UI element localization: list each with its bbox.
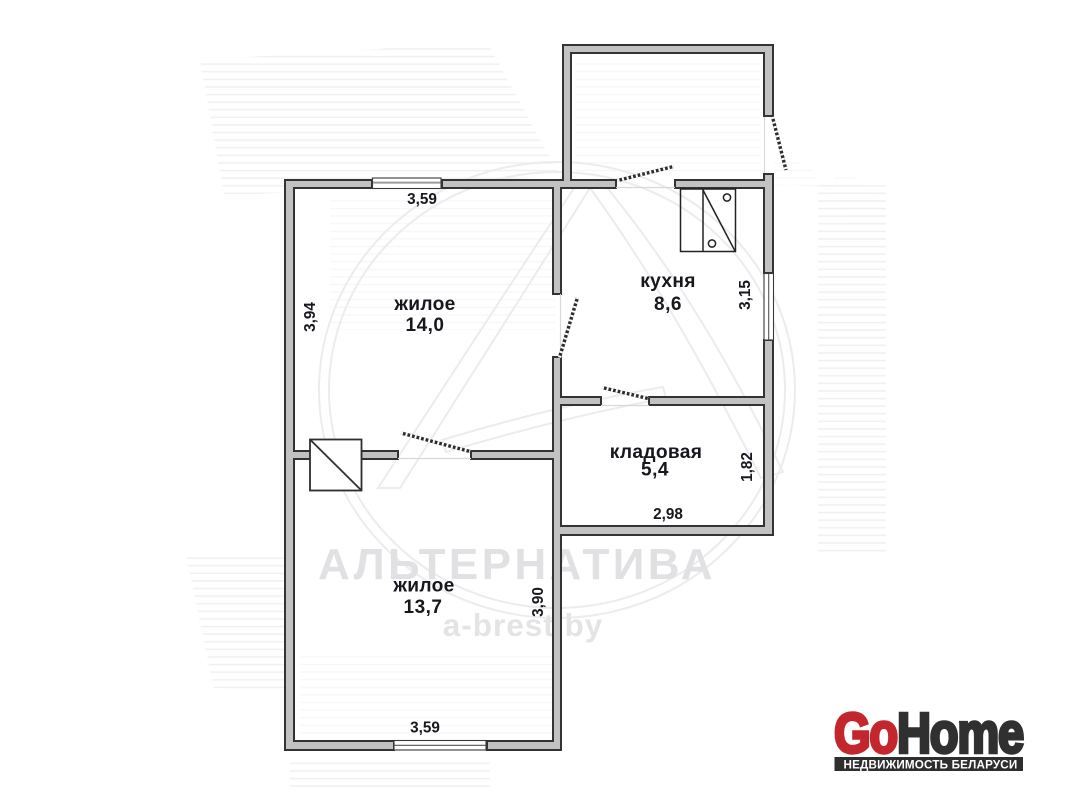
svg-text:НЕДВИЖИМОСТЬ БЕЛАРУСИ: НЕДВИЖИМОСТЬ БЕЛАРУСИ: [844, 757, 1018, 771]
svg-text:3,59: 3,59: [407, 191, 437, 208]
svg-text:АЛЬТЕРНАТИВА: АЛЬТЕРНАТИВА: [318, 540, 716, 589]
svg-text:1,82: 1,82: [739, 452, 756, 482]
svg-text:кухня: кухня: [640, 271, 695, 292]
svg-text:3,15: 3,15: [737, 280, 754, 310]
svg-text:3,94: 3,94: [302, 302, 319, 332]
svg-text:14,0: 14,0: [406, 315, 445, 336]
svg-text:3,90: 3,90: [530, 587, 547, 617]
svg-text:2,98: 2,98: [653, 506, 683, 523]
svg-text:жилое: жилое: [393, 294, 455, 315]
svg-text:жилое: жилое: [392, 576, 454, 597]
svg-text:5,4: 5,4: [641, 460, 669, 481]
svg-text:3,59: 3,59: [410, 720, 440, 737]
svg-text:8,6: 8,6: [654, 294, 682, 315]
svg-text:a-brest.by: a-brest.by: [443, 607, 604, 643]
svg-text:13,7: 13,7: [404, 597, 443, 618]
